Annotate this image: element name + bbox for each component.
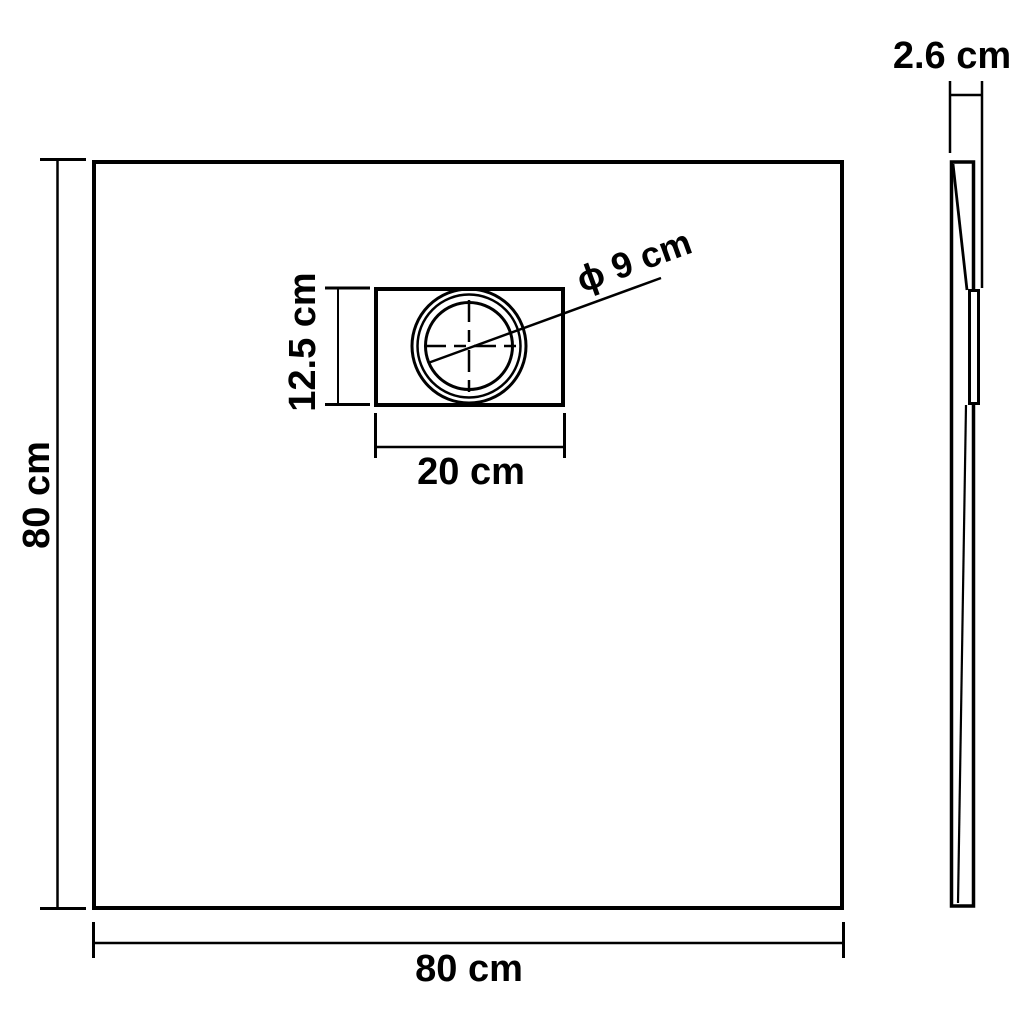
tray-side-profile [952,162,974,906]
dimension-drawing: 80 cm 80 cm 12.5 cm 20 cm ϕ 9 cm 2.6 cm [0,0,1024,1024]
plan-height-label: 80 cm [18,441,56,549]
tray-plan-outline [94,162,842,908]
drain-height-label: 12.5 cm [284,272,322,411]
thickness-label: 2.6 cm [893,37,1011,75]
drawing-linework [0,0,1024,1024]
drain-width-label: 20 cm [417,453,525,491]
plan-width-label: 80 cm [415,950,523,988]
side-profile-drain-bump [970,291,979,404]
